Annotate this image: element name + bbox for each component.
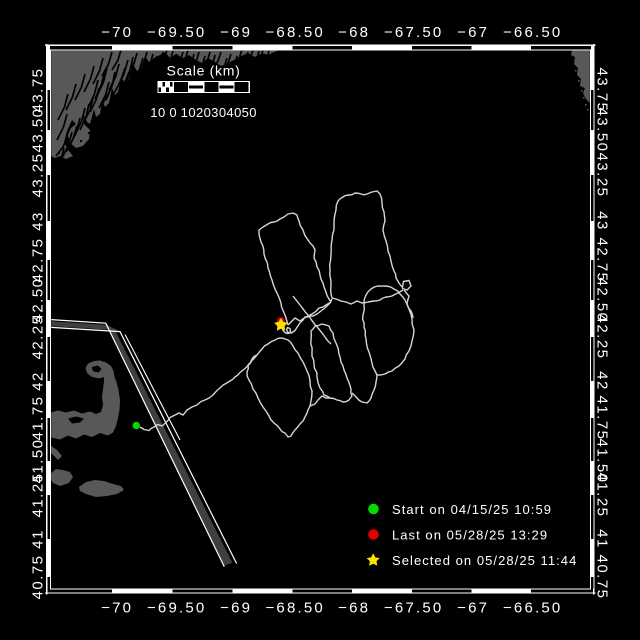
svg-text:−67: −67 [457, 600, 489, 617]
svg-text:42.75: 42.75 [30, 237, 47, 282]
svg-text:42: 42 [30, 371, 47, 391]
svg-text:−68: −68 [338, 600, 370, 617]
svg-text:Last on 05/28/25 13:29: Last on 05/28/25 13:29 [392, 527, 548, 542]
svg-text:41: 41 [30, 529, 47, 549]
svg-text:43.25: 43.25 [594, 152, 611, 197]
svg-text:40.75: 40.75 [30, 554, 47, 599]
svg-text:30: 30 [211, 105, 226, 120]
svg-text:10: 10 [181, 105, 196, 120]
svg-text:50: 50 [242, 105, 257, 120]
svg-text:−69: −69 [220, 600, 252, 617]
svg-text:−66.50: −66.50 [503, 600, 563, 617]
svg-text:42.25: 42.25 [30, 314, 47, 359]
svg-text:−67.50: −67.50 [384, 600, 444, 617]
svg-text:43.50: 43.50 [594, 107, 611, 152]
svg-text:−69.50: −69.50 [147, 600, 207, 617]
svg-text:41.75: 41.75 [594, 395, 611, 440]
svg-text:43.75: 43.75 [30, 67, 47, 112]
svg-text:43.75: 43.75 [594, 67, 611, 112]
svg-text:−68.50: −68.50 [265, 24, 325, 41]
svg-text:−70: −70 [101, 24, 133, 41]
svg-text:−69.50: −69.50 [147, 24, 207, 41]
svg-text:42.75: 42.75 [594, 237, 611, 282]
svg-text:10: 10 [150, 105, 165, 120]
svg-text:41: 41 [594, 529, 611, 549]
svg-text:−69: −69 [220, 24, 252, 41]
svg-text:40: 40 [226, 105, 241, 120]
svg-text:−68: −68 [338, 24, 370, 41]
svg-text:43: 43 [30, 211, 47, 231]
svg-text:42.25: 42.25 [594, 314, 611, 359]
svg-text:41.25: 41.25 [30, 472, 47, 517]
svg-text:Selected on 05/28/25 11:44: Selected on 05/28/25 11:44 [392, 553, 577, 568]
svg-text:−66.50: −66.50 [503, 24, 563, 41]
svg-text:40.75: 40.75 [594, 554, 611, 599]
svg-text:42: 42 [594, 371, 611, 391]
svg-text:−67: −67 [457, 24, 489, 41]
svg-text:43.25: 43.25 [30, 152, 47, 197]
svg-text:−67.50: −67.50 [384, 24, 444, 41]
svg-text:43.50: 43.50 [30, 107, 47, 152]
svg-text:−68.50: −68.50 [265, 600, 325, 617]
svg-text:Start on 04/15/25 10:59: Start on 04/15/25 10:59 [392, 502, 552, 517]
svg-text:−70: −70 [101, 600, 133, 617]
svg-text:Scale (km): Scale (km) [167, 63, 241, 79]
svg-text:0: 0 [169, 105, 177, 120]
svg-text:20: 20 [196, 105, 211, 120]
svg-text:43: 43 [594, 211, 611, 231]
svg-text:41.75: 41.75 [30, 395, 47, 440]
svg-text:41.25: 41.25 [594, 472, 611, 517]
